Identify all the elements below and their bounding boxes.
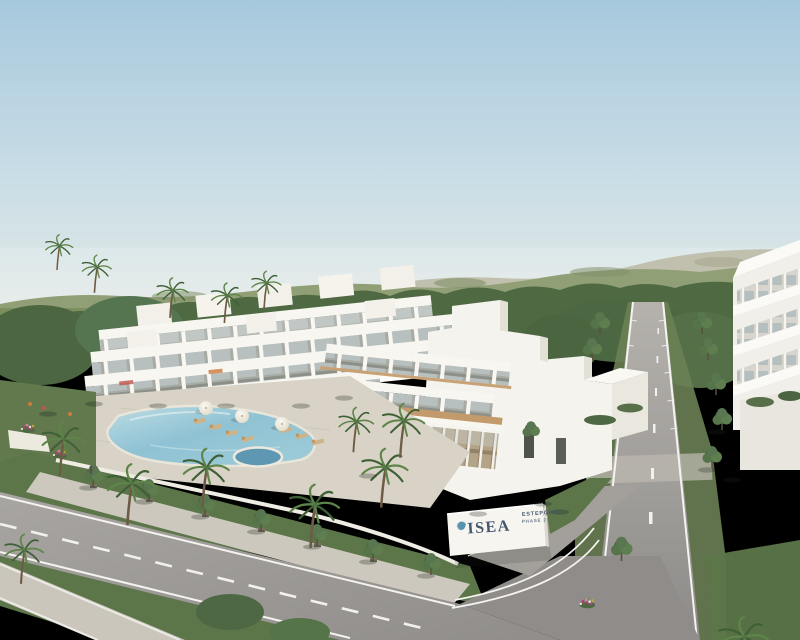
kids-pool — [234, 448, 282, 467]
sign-title-text: ISEA — [467, 518, 511, 538]
scene-svg: ISEA ESTEPONA PHASE 2 — [0, 0, 800, 640]
person-on-path — [90, 466, 93, 475]
right-building — [733, 240, 800, 470]
render-image: ISEA ESTEPONA PHASE 2 — [0, 0, 800, 640]
